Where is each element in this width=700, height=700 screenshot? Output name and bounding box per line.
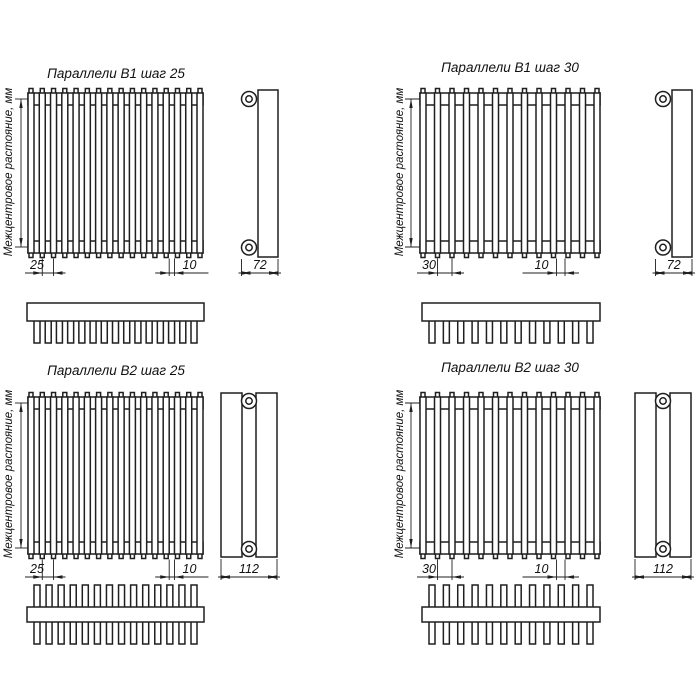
tube [565, 93, 571, 253]
tube [28, 397, 34, 554]
tube [186, 397, 192, 554]
step-dimension-b1-step25: 25 [25, 258, 66, 276]
comb-tooth [119, 585, 125, 608]
tube [507, 397, 513, 554]
side-body-row2 [256, 393, 277, 557]
step-dimension-b1-step30: 30 [417, 258, 464, 276]
comb-tooth [558, 320, 564, 343]
gap-dimension-b1-step30: 10 [523, 258, 580, 276]
tube [174, 93, 180, 253]
tube [536, 93, 542, 253]
step-dimension-value: 30 [422, 258, 436, 272]
tube [152, 93, 158, 253]
comb-header-bar [27, 607, 204, 622]
pipe-connection-inner [246, 96, 252, 102]
dimension-arrow [409, 238, 412, 247]
tube [449, 397, 455, 554]
comb-tooth [143, 585, 149, 608]
comb-tooth [79, 320, 85, 343]
comb-tooth [82, 621, 88, 644]
comb-tooth [90, 320, 96, 343]
tube [565, 397, 571, 554]
tube [478, 397, 484, 554]
comb-tooth [179, 585, 185, 608]
comb-tooth [458, 320, 464, 343]
comb-tooth [143, 621, 149, 644]
center-distance-label-b1-step30: Межцентровое растояние, мм [394, 77, 406, 267]
tube [107, 397, 113, 554]
tube [594, 93, 600, 253]
comb-tooth [167, 585, 173, 608]
comb-tooth [113, 320, 119, 343]
quadrant-b2-step30: 3010112 [405, 393, 694, 645]
tube [186, 93, 192, 253]
comb-tooth [101, 320, 107, 343]
comb-tooth [587, 585, 593, 608]
comb-tooth [135, 320, 141, 343]
comb-tooth [544, 320, 550, 343]
comb-tooth [191, 320, 197, 343]
side-view-b1-step25 [242, 90, 279, 257]
quadrant-b2-step25: 2510112 [15, 393, 280, 645]
comb-tooth [45, 320, 51, 343]
top-view-b1-step30 [422, 303, 600, 343]
step-dimension-b2-step25: 25 [25, 560, 66, 581]
comb-tooth [443, 320, 449, 343]
tube [39, 397, 45, 554]
comb-tooth [558, 621, 564, 644]
tube [197, 93, 203, 253]
comb-tooth [515, 585, 521, 608]
comb-header-bar [422, 303, 600, 321]
comb-header-bar [422, 607, 600, 622]
comb-tooth [530, 585, 536, 608]
depth-dimension-value: 112 [239, 562, 259, 576]
center-distance-label-b2-step30: Межцентровое растояние, мм [394, 379, 406, 569]
comb-tooth [443, 585, 449, 608]
dimension-arrow [54, 575, 63, 578]
tube [118, 93, 124, 253]
comb-tooth [58, 621, 64, 644]
dimension-arrow [409, 539, 412, 548]
gap-dimension-b1-step25: 10 [155, 258, 208, 276]
depth-dimension-b1-step25: 72 [239, 258, 282, 276]
tube [174, 397, 180, 554]
gap-dimension-b2-step25: 10 [155, 560, 208, 581]
drawing-title-b1-step25: Параллели В1 шаг 25 [6, 66, 226, 81]
tube [73, 93, 79, 253]
side-body [258, 90, 278, 257]
comb-tooth [458, 585, 464, 608]
tube [28, 93, 34, 253]
comb-tooth [146, 320, 152, 343]
tube [493, 93, 499, 253]
drawing-canvas: 25107230107225101123010112 [0, 0, 700, 700]
dimension-arrow [565, 271, 574, 274]
comb-tooth [106, 585, 112, 608]
pipe-connection-inner [660, 398, 666, 404]
dimension-arrow [409, 403, 412, 412]
tube [84, 397, 90, 554]
comb-tooth [530, 320, 536, 343]
quadrant-b1-step30: 301072 [405, 89, 695, 344]
top-view-b2-step30 [422, 585, 600, 644]
tube [435, 93, 441, 253]
dimension-arrow [19, 238, 22, 247]
dimension-arrow [160, 575, 169, 578]
comb-tooth [180, 320, 186, 343]
comb-tooth [501, 320, 507, 343]
dimension-arrow [548, 575, 557, 578]
dimension-arrow [19, 99, 22, 108]
front-view-b1-step25 [28, 89, 203, 258]
comb-tooth [486, 320, 492, 343]
side-body-row1 [635, 393, 656, 557]
tube [420, 397, 426, 554]
comb-tooth [558, 585, 564, 608]
side-body-row2 [670, 393, 691, 557]
comb-tooth [429, 621, 435, 644]
tube [129, 93, 135, 253]
comb-tooth [124, 320, 130, 343]
side-body-row1 [221, 393, 242, 557]
dimension-arrow [19, 403, 22, 412]
tube [152, 397, 158, 554]
dimension-arrow [548, 271, 557, 274]
comb-tooth [191, 585, 197, 608]
step-dimension-value: 25 [29, 258, 44, 272]
comb-tooth [68, 320, 74, 343]
tube [522, 93, 528, 253]
tube [197, 397, 203, 554]
side-view-b2-step25 [221, 393, 277, 557]
tube [39, 93, 45, 253]
comb-tooth [119, 621, 125, 644]
tube [118, 397, 124, 554]
drawing-title-b1-step30: Параллели В1 шаг 30 [400, 60, 620, 75]
depth-dimension-value: 72 [667, 258, 681, 272]
comb-tooth [131, 621, 137, 644]
tube [96, 397, 102, 554]
comb-tooth [191, 621, 197, 644]
comb-tooth [573, 585, 579, 608]
tube [51, 93, 57, 253]
tube [449, 93, 455, 253]
dimension-arrow [565, 575, 574, 578]
comb-tooth [94, 585, 100, 608]
tube [420, 93, 426, 253]
comb-tooth [169, 320, 175, 343]
technical-drawing: 25107230107225101123010112 Параллели В1 … [0, 0, 700, 700]
tube [129, 397, 135, 554]
tube [163, 397, 169, 554]
dimension-arrow [19, 539, 22, 548]
comb-tooth [573, 320, 579, 343]
tube [464, 93, 470, 253]
tube [107, 93, 113, 253]
comb-tooth [106, 621, 112, 644]
comb-tooth [587, 621, 593, 644]
comb-tooth [157, 320, 163, 343]
tube [435, 397, 441, 554]
dimension-arrow [452, 271, 461, 274]
front-view-b1-step30 [420, 89, 600, 258]
top-view-b2-step25 [27, 585, 204, 644]
comb-tooth [34, 320, 40, 343]
tube [580, 397, 586, 554]
comb-tooth [472, 585, 478, 608]
comb-tooth [486, 621, 492, 644]
comb-tooth [46, 621, 52, 644]
tube [478, 93, 484, 253]
depth-dimension-value: 72 [253, 258, 267, 272]
comb-tooth [155, 585, 161, 608]
tube [580, 93, 586, 253]
comb-tooth [544, 585, 550, 608]
depth-dimension-b1-step30: 72 [653, 258, 696, 276]
comb-tooth [70, 621, 76, 644]
gap-dimension-value: 10 [183, 258, 197, 272]
pipe-connection-inner [246, 244, 252, 250]
tube [84, 93, 90, 253]
comb-tooth [155, 621, 161, 644]
comb-tooth [515, 320, 521, 343]
step-dimension-b2-step30: 30 [417, 560, 464, 581]
comb-tooth [167, 621, 173, 644]
tube [96, 93, 102, 253]
tube [551, 93, 557, 253]
comb-tooth [429, 585, 435, 608]
step-dimension-value: 25 [29, 562, 44, 576]
comb-tooth [587, 320, 593, 343]
side-view-b2-step30 [635, 393, 691, 557]
gap-dimension-value: 10 [183, 562, 197, 576]
pipe-connection-inner [660, 96, 666, 102]
pipe-connection-inner [660, 244, 666, 250]
pipe-connection-inner [246, 546, 252, 552]
tube [522, 397, 528, 554]
comb-tooth [544, 621, 550, 644]
comb-tooth [530, 621, 536, 644]
dimension-arrow [54, 271, 63, 274]
gap-dimension-b2-step30: 10 [523, 560, 580, 581]
side-view-b1-step30 [656, 90, 693, 257]
center-distance-label-b1-step25: Межцентровое растояние, мм [3, 77, 15, 267]
comb-tooth [573, 621, 579, 644]
pipe-connection-inner [660, 546, 666, 552]
depth-dimension-value: 112 [653, 562, 673, 576]
dimension-arrow [409, 99, 412, 108]
comb-tooth [515, 621, 521, 644]
comb-tooth [472, 320, 478, 343]
center-distance-label-b2-step25: Межцентровое растояние, мм [3, 379, 15, 569]
comb-tooth [70, 585, 76, 608]
comb-tooth [34, 621, 40, 644]
comb-tooth [501, 585, 507, 608]
tube [62, 93, 68, 253]
tube [62, 397, 68, 554]
tube [73, 397, 79, 554]
comb-tooth [429, 320, 435, 343]
front-view-b2-step30 [420, 393, 600, 559]
comb-tooth [56, 320, 62, 343]
comb-tooth [472, 621, 478, 644]
depth-dimension-b2-step25: 112 [218, 559, 280, 580]
comb-tooth [458, 621, 464, 644]
comb-header-bar [27, 303, 204, 321]
comb-tooth [131, 585, 137, 608]
comb-tooth [443, 621, 449, 644]
drawing-title-b2-step25: Параллели В2 шаг 25 [6, 363, 226, 378]
dimension-arrow [160, 271, 169, 274]
comb-tooth [94, 621, 100, 644]
comb-tooth [34, 585, 40, 608]
top-view-b1-step25 [27, 303, 204, 343]
tube [141, 93, 147, 253]
tube [141, 397, 147, 554]
pipe-connection-inner [246, 398, 252, 404]
comb-tooth [179, 621, 185, 644]
front-view-b2-step25 [28, 393, 203, 559]
dimension-arrow [452, 575, 461, 578]
tube [493, 397, 499, 554]
side-body [672, 90, 692, 257]
comb-tooth [58, 585, 64, 608]
drawing-title-b2-step30: Параллели В2 шаг 30 [400, 360, 620, 375]
tube [594, 397, 600, 554]
tube [536, 397, 542, 554]
comb-tooth [486, 585, 492, 608]
depth-dimension-b2-step30: 112 [632, 559, 694, 580]
quadrant-b1-step25: 251072 [15, 89, 281, 344]
comb-tooth [82, 585, 88, 608]
comb-tooth [501, 621, 507, 644]
gap-dimension-value: 10 [535, 258, 549, 272]
gap-dimension-value: 10 [535, 562, 549, 576]
tube [507, 93, 513, 253]
tube [464, 397, 470, 554]
tube [51, 397, 57, 554]
step-dimension-value: 30 [422, 562, 436, 576]
comb-tooth [46, 585, 52, 608]
tube [163, 93, 169, 253]
tube [551, 397, 557, 554]
